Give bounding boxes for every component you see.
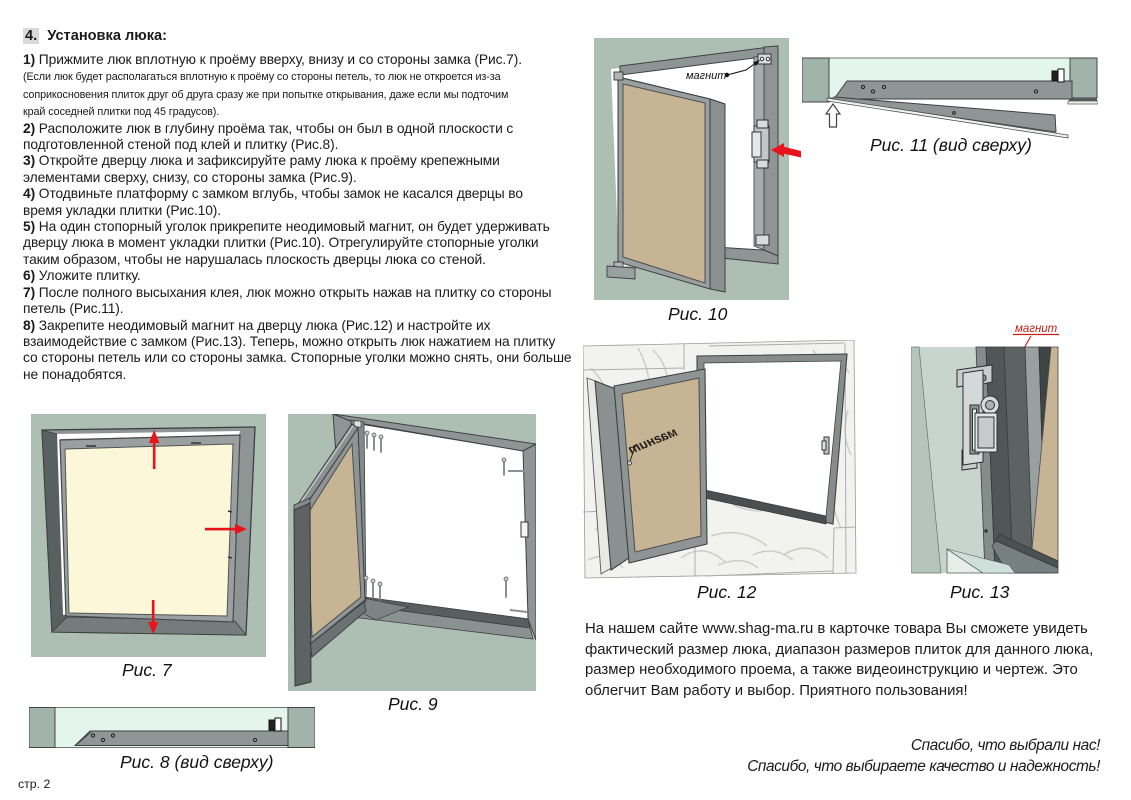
svg-text:магнит: магнит	[1015, 323, 1058, 335]
svg-text:магнит: магнит	[686, 70, 726, 82]
